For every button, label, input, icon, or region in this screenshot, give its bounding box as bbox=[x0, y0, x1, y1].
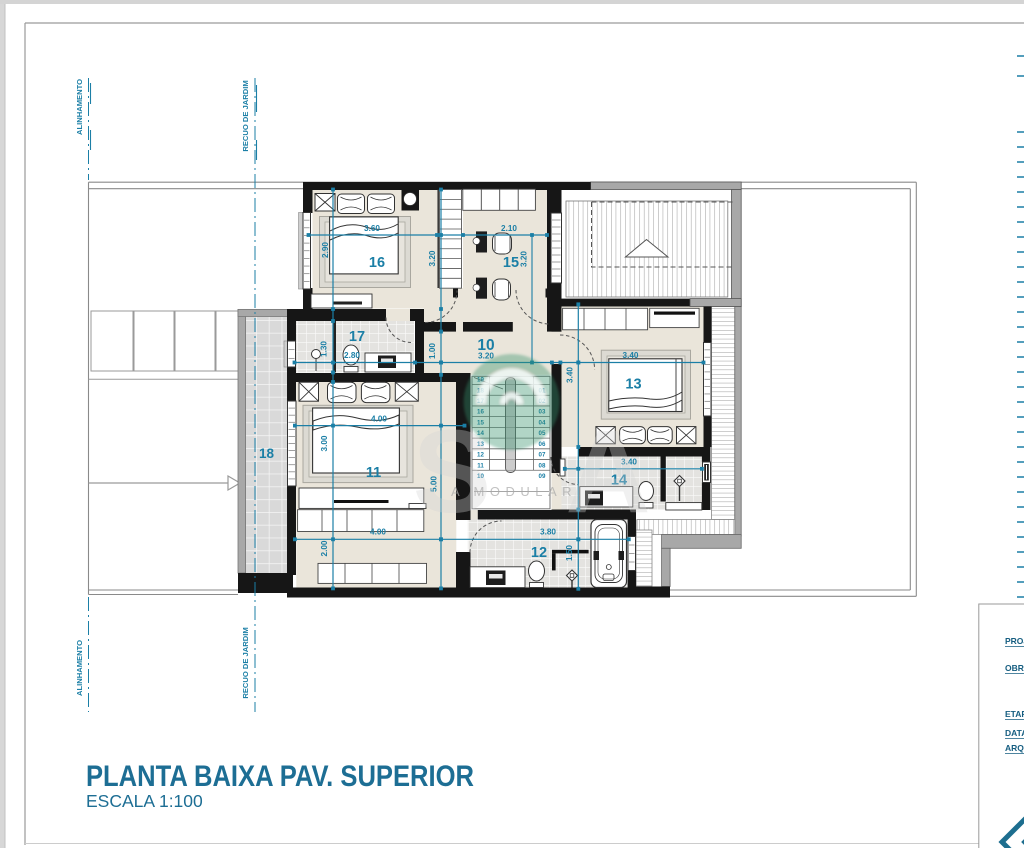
svg-text:12: 12 bbox=[531, 545, 547, 561]
svg-text:4.00: 4.00 bbox=[371, 415, 387, 424]
svg-text:3.00: 3.00 bbox=[320, 435, 329, 451]
svg-text:3.40: 3.40 bbox=[623, 351, 639, 360]
svg-text:3.40: 3.40 bbox=[566, 367, 575, 383]
svg-text:OBRA: OBRA bbox=[1005, 663, 1024, 673]
svg-text:11: 11 bbox=[366, 465, 381, 481]
svg-text:2.90: 2.90 bbox=[321, 242, 330, 258]
svg-text:RECUO DE JARDIM: RECUO DE JARDIM bbox=[241, 627, 250, 698]
svg-text:2.10: 2.10 bbox=[501, 224, 517, 233]
svg-text:1.50: 1.50 bbox=[565, 545, 574, 561]
svg-text:07: 07 bbox=[539, 452, 546, 459]
svg-text:DATA: DATA bbox=[1005, 728, 1024, 738]
svg-text:09: 09 bbox=[539, 473, 546, 480]
svg-text:1.00: 1.00 bbox=[428, 343, 437, 359]
svg-text:16: 16 bbox=[369, 255, 385, 271]
svg-text:15: 15 bbox=[503, 255, 519, 271]
svg-text:2.80: 2.80 bbox=[344, 351, 360, 360]
svg-text:10: 10 bbox=[477, 337, 494, 354]
svg-text:1.30: 1.30 bbox=[320, 341, 329, 357]
svg-text:ALINHAMENTO: ALINHAMENTO bbox=[75, 640, 84, 696]
svg-text:PLANTA BAIXA PAV. SUPERIOR: PLANTA BAIXA PAV. SUPERIOR bbox=[86, 760, 474, 793]
svg-text:3.20: 3.20 bbox=[428, 250, 437, 266]
svg-text:06: 06 bbox=[539, 441, 546, 448]
svg-text:3.20: 3.20 bbox=[520, 251, 529, 267]
svg-text:17: 17 bbox=[349, 329, 365, 345]
svg-text:RECUO DE JARDIM: RECUO DE JARDIM bbox=[241, 80, 250, 151]
svg-text:3.80: 3.80 bbox=[540, 528, 556, 537]
svg-text:4.00: 4.00 bbox=[370, 528, 386, 537]
svg-text:3.60: 3.60 bbox=[364, 224, 380, 233]
svg-text:A: A bbox=[565, 406, 650, 538]
svg-text:ALINHAMENTO: ALINHAMENTO bbox=[75, 79, 84, 135]
svg-text:13: 13 bbox=[625, 377, 641, 393]
svg-text:ESCALA 1:100: ESCALA 1:100 bbox=[86, 791, 203, 811]
svg-text:A MODULAR: A MODULAR bbox=[451, 484, 577, 499]
svg-text:2.00: 2.00 bbox=[320, 540, 329, 556]
svg-text:ETAPA: ETAPA bbox=[1005, 709, 1024, 719]
svg-text:ARQ.: ARQ. bbox=[1005, 743, 1024, 753]
svg-text:08: 08 bbox=[539, 462, 546, 469]
svg-text:PROJE: PROJE bbox=[1005, 636, 1024, 646]
svg-text:18: 18 bbox=[259, 446, 275, 461]
